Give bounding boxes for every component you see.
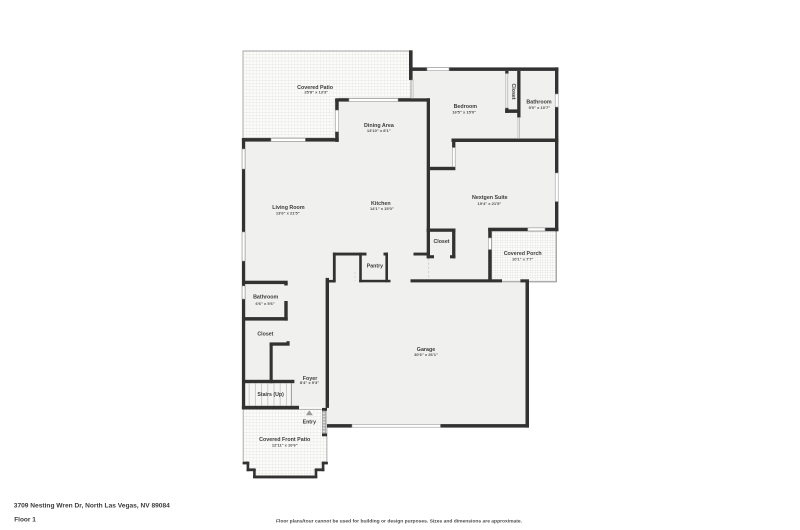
svg-text:Closet: Closet [433,239,449,245]
svg-text:Closet: Closet [257,332,273,338]
svg-text:16'5" x 15'0": 16'5" x 15'0" [452,110,476,115]
svg-text:Floor plans/tour cannot be use: Floor plans/tour cannot be used for buil… [276,519,523,525]
svg-text:14'1" x 15'0": 14'1" x 15'0" [370,206,394,211]
svg-text:Entry: Entry [303,420,317,426]
svg-text:10'1" x 7'7": 10'1" x 7'7" [512,256,534,261]
svg-text:12'11" x 10'6": 12'11" x 10'6" [272,443,298,448]
svg-text:30'6" x 26'1": 30'6" x 26'1" [414,352,438,357]
svg-text:Bathroom: Bathroom [253,295,278,301]
svg-text:13'6" x 21'5": 13'6" x 21'5" [276,210,300,215]
svg-text:19'4" x 21'5": 19'4" x 21'5" [478,201,502,206]
svg-text:Pantry: Pantry [367,263,383,269]
svg-text:8'4" x 9'3": 8'4" x 9'3" [300,380,319,385]
svg-text:Stairs (Up): Stairs (Up) [257,392,284,398]
svg-text:13'10" x 8'1": 13'10" x 8'1" [367,128,391,133]
svg-text:25'8" x 13'3": 25'8" x 13'3" [304,90,328,95]
svg-text:Floor 1: Floor 1 [14,516,36,523]
svg-text:5'0" x 10'7": 5'0" x 10'7" [529,105,551,110]
svg-text:3709 Nesting Wren Dr, North La: 3709 Nesting Wren Dr, North Las Vegas, N… [14,503,170,510]
svg-text:6'6" x 5'6": 6'6" x 5'6" [255,301,274,306]
svg-text:Closet: Closet [510,83,516,99]
